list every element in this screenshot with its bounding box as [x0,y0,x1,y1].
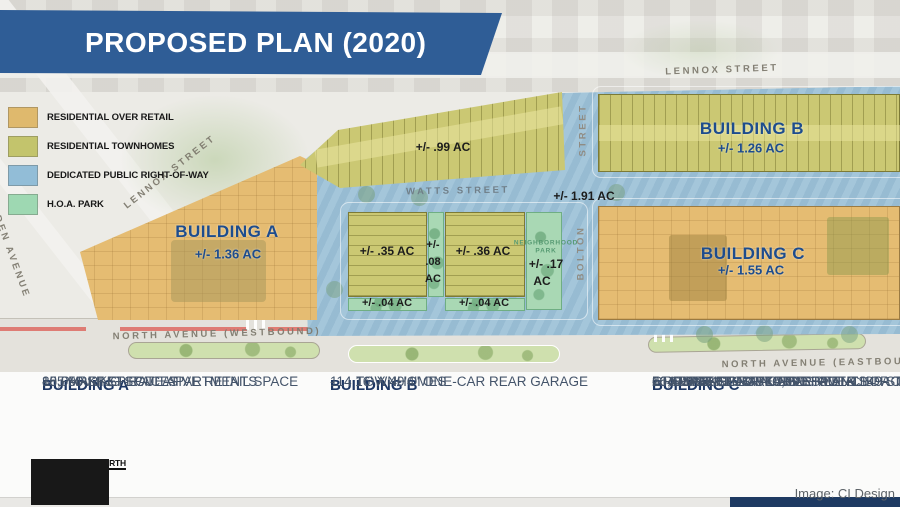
street-trees [0,0,9,9]
neighborhood-park-label-line2: PARK [535,248,556,255]
neighborhood-park-label-line1: NEIGHBORHOOD [514,240,578,247]
building-c-courtyard [827,217,889,275]
building-c-label: BUILDING C [701,244,805,264]
building-a-label: BUILDING A [175,222,279,242]
townhomes-area-label: +/- .99 AC [416,140,471,154]
building-c-area: +/- 1.55 AC [718,263,784,278]
building-b-label: BUILDING B [700,119,804,139]
logo-mosaic [31,459,109,505]
building-a-area: +/- 1.36 AC [195,247,261,262]
street-label-bolton-street: STREET [578,103,589,156]
street-label-bolton: BOLTON [576,226,587,281]
image-credit: Image: CI Design [795,486,895,501]
building-b-area: +/- 1.26 AC [718,141,784,156]
parcel-35-area-label: +/- .35 AC [360,244,415,258]
parcel-36-area-label: +/- .36 AC [456,244,511,258]
legend-label: RESIDENTIAL TOWNHOMES [47,141,174,152]
legend-label: DEDICATED PUBLIC RIGHT-OF-WAY [47,170,209,181]
strip-08-label-line2: .08 [425,256,440,268]
detail-text: 88 PARKING SPACES [42,372,178,391]
legend-swatch-blue [8,165,38,186]
strip-08-label-line1: +/- [426,239,439,251]
page-title: PROPOSED PLAN (2020) [85,27,426,59]
park-17-area-line1: +/- .17 [529,257,563,271]
detail-text-continuation: TOWNHOMES [356,372,447,391]
legend-label: RESIDENTIAL OVER RETAIL [47,112,174,123]
park-17-area-line2: AC [533,274,550,288]
legend-label: H.O.A. PARK [47,199,104,210]
detail-text: 50 SURFACE PARKING SPACES [652,372,856,391]
legend-swatch-olive [8,136,38,157]
building-details-panel: BUILDING A - 155 MARKET-RATE APARTMENTS … [0,372,900,507]
row-area-label: +/- 1.91 AC [553,189,614,203]
proposed-plan-figure: LENNOX STREET LENNOX STREET LINDEN AVENU… [0,0,900,507]
median-planting [348,345,560,363]
median-planting [128,342,320,359]
strip-04-right-label: +/- .04 AC [459,297,509,309]
strip-04-left-label: +/- .04 AC [362,297,412,309]
legend-swatch-orange [8,107,38,128]
strip-08-label-line3: AC [425,273,441,285]
legend-swatch-green [8,194,38,215]
road-marking-red [0,327,86,331]
street-label-watts: WATTS STREET [406,185,510,198]
